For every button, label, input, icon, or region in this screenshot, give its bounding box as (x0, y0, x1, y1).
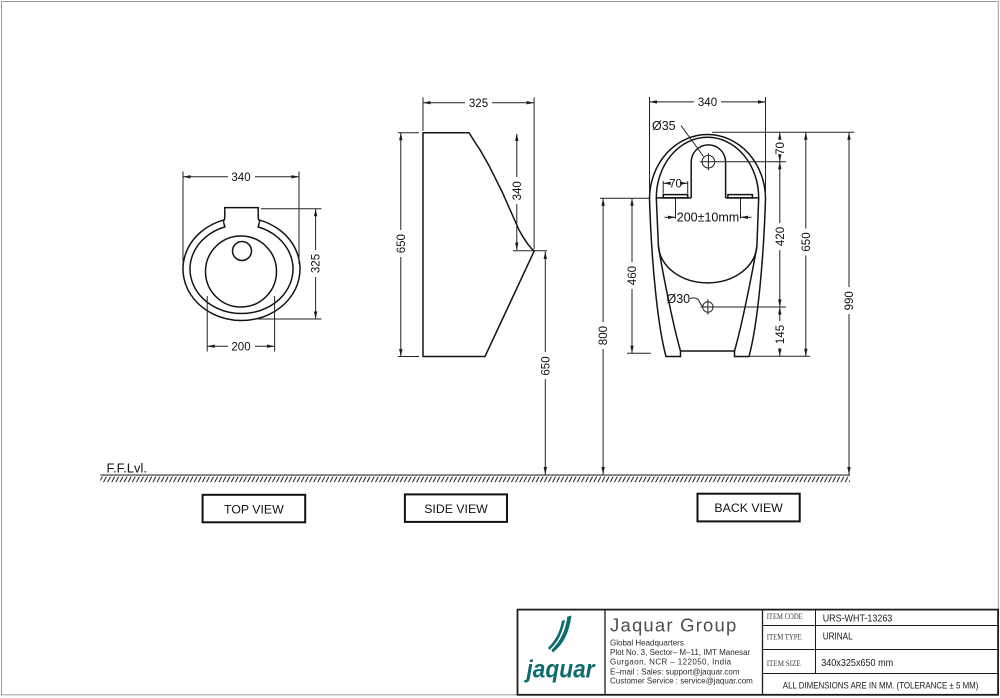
svg-text:420: 420 (775, 227, 787, 246)
svg-text:200±10mm: 200±10mm (677, 211, 739, 225)
svg-text:BACK VIEW: BACK VIEW (714, 501, 783, 515)
svg-text:70: 70 (669, 179, 682, 191)
svg-text:650: 650 (801, 232, 813, 251)
svg-text:URS-WHT-13263: URS-WHT-13263 (823, 612, 893, 624)
svg-text:jaquar: jaquar (524, 656, 596, 684)
svg-text:340: 340 (698, 97, 717, 109)
svg-text:340: 340 (231, 172, 250, 184)
svg-text:F.F.Lvl.: F.F.Lvl. (107, 461, 147, 476)
svg-text:200: 200 (231, 341, 250, 353)
svg-text:340: 340 (512, 181, 524, 200)
svg-text:E–mail : Sales: support@jaquar: E–mail : Sales: support@jaquar.com (610, 667, 740, 676)
svg-text:650: 650 (540, 356, 552, 375)
svg-text:ITEM SIZE: ITEM SIZE (767, 658, 801, 668)
svg-text:Plot No. 3, Sector– M–11, IMT: Plot No. 3, Sector– M–11, IMT Manesar (610, 648, 751, 657)
svg-text:990: 990 (844, 291, 856, 310)
svg-text:SIDE VIEW: SIDE VIEW (424, 502, 488, 516)
svg-text:800: 800 (598, 326, 610, 345)
svg-text:Global Headquarters: Global Headquarters (610, 638, 684, 647)
svg-text:Ø30: Ø30 (667, 292, 691, 306)
svg-text:325: 325 (311, 254, 323, 273)
svg-text:70: 70 (775, 142, 787, 155)
svg-text:Ø35: Ø35 (652, 119, 676, 133)
svg-text:Jaquar Group: Jaquar Group (610, 615, 738, 636)
svg-text:460: 460 (627, 266, 639, 285)
svg-text:Gurgaon, NCR – 122050, India: Gurgaon, NCR – 122050, India (610, 657, 732, 666)
svg-text:ITEM TYPE: ITEM TYPE (767, 632, 802, 642)
svg-text:ALL DIMENSIONS ARE IN MM. (TOL: ALL DIMENSIONS ARE IN MM. (TOLERANCE ± 5… (783, 681, 979, 692)
svg-text:Customer Service : service@jaq: Customer Service : service@jaquar.com (610, 676, 753, 685)
svg-text:TOP VIEW: TOP VIEW (224, 502, 284, 516)
svg-text:ITEM CODE: ITEM CODE (767, 611, 803, 621)
svg-text:650: 650 (396, 234, 408, 253)
svg-text:145: 145 (775, 325, 787, 344)
svg-text:325: 325 (469, 98, 488, 110)
svg-text:340x325x650 mm: 340x325x650 mm (821, 657, 893, 669)
svg-text:URINAL: URINAL (823, 632, 853, 643)
